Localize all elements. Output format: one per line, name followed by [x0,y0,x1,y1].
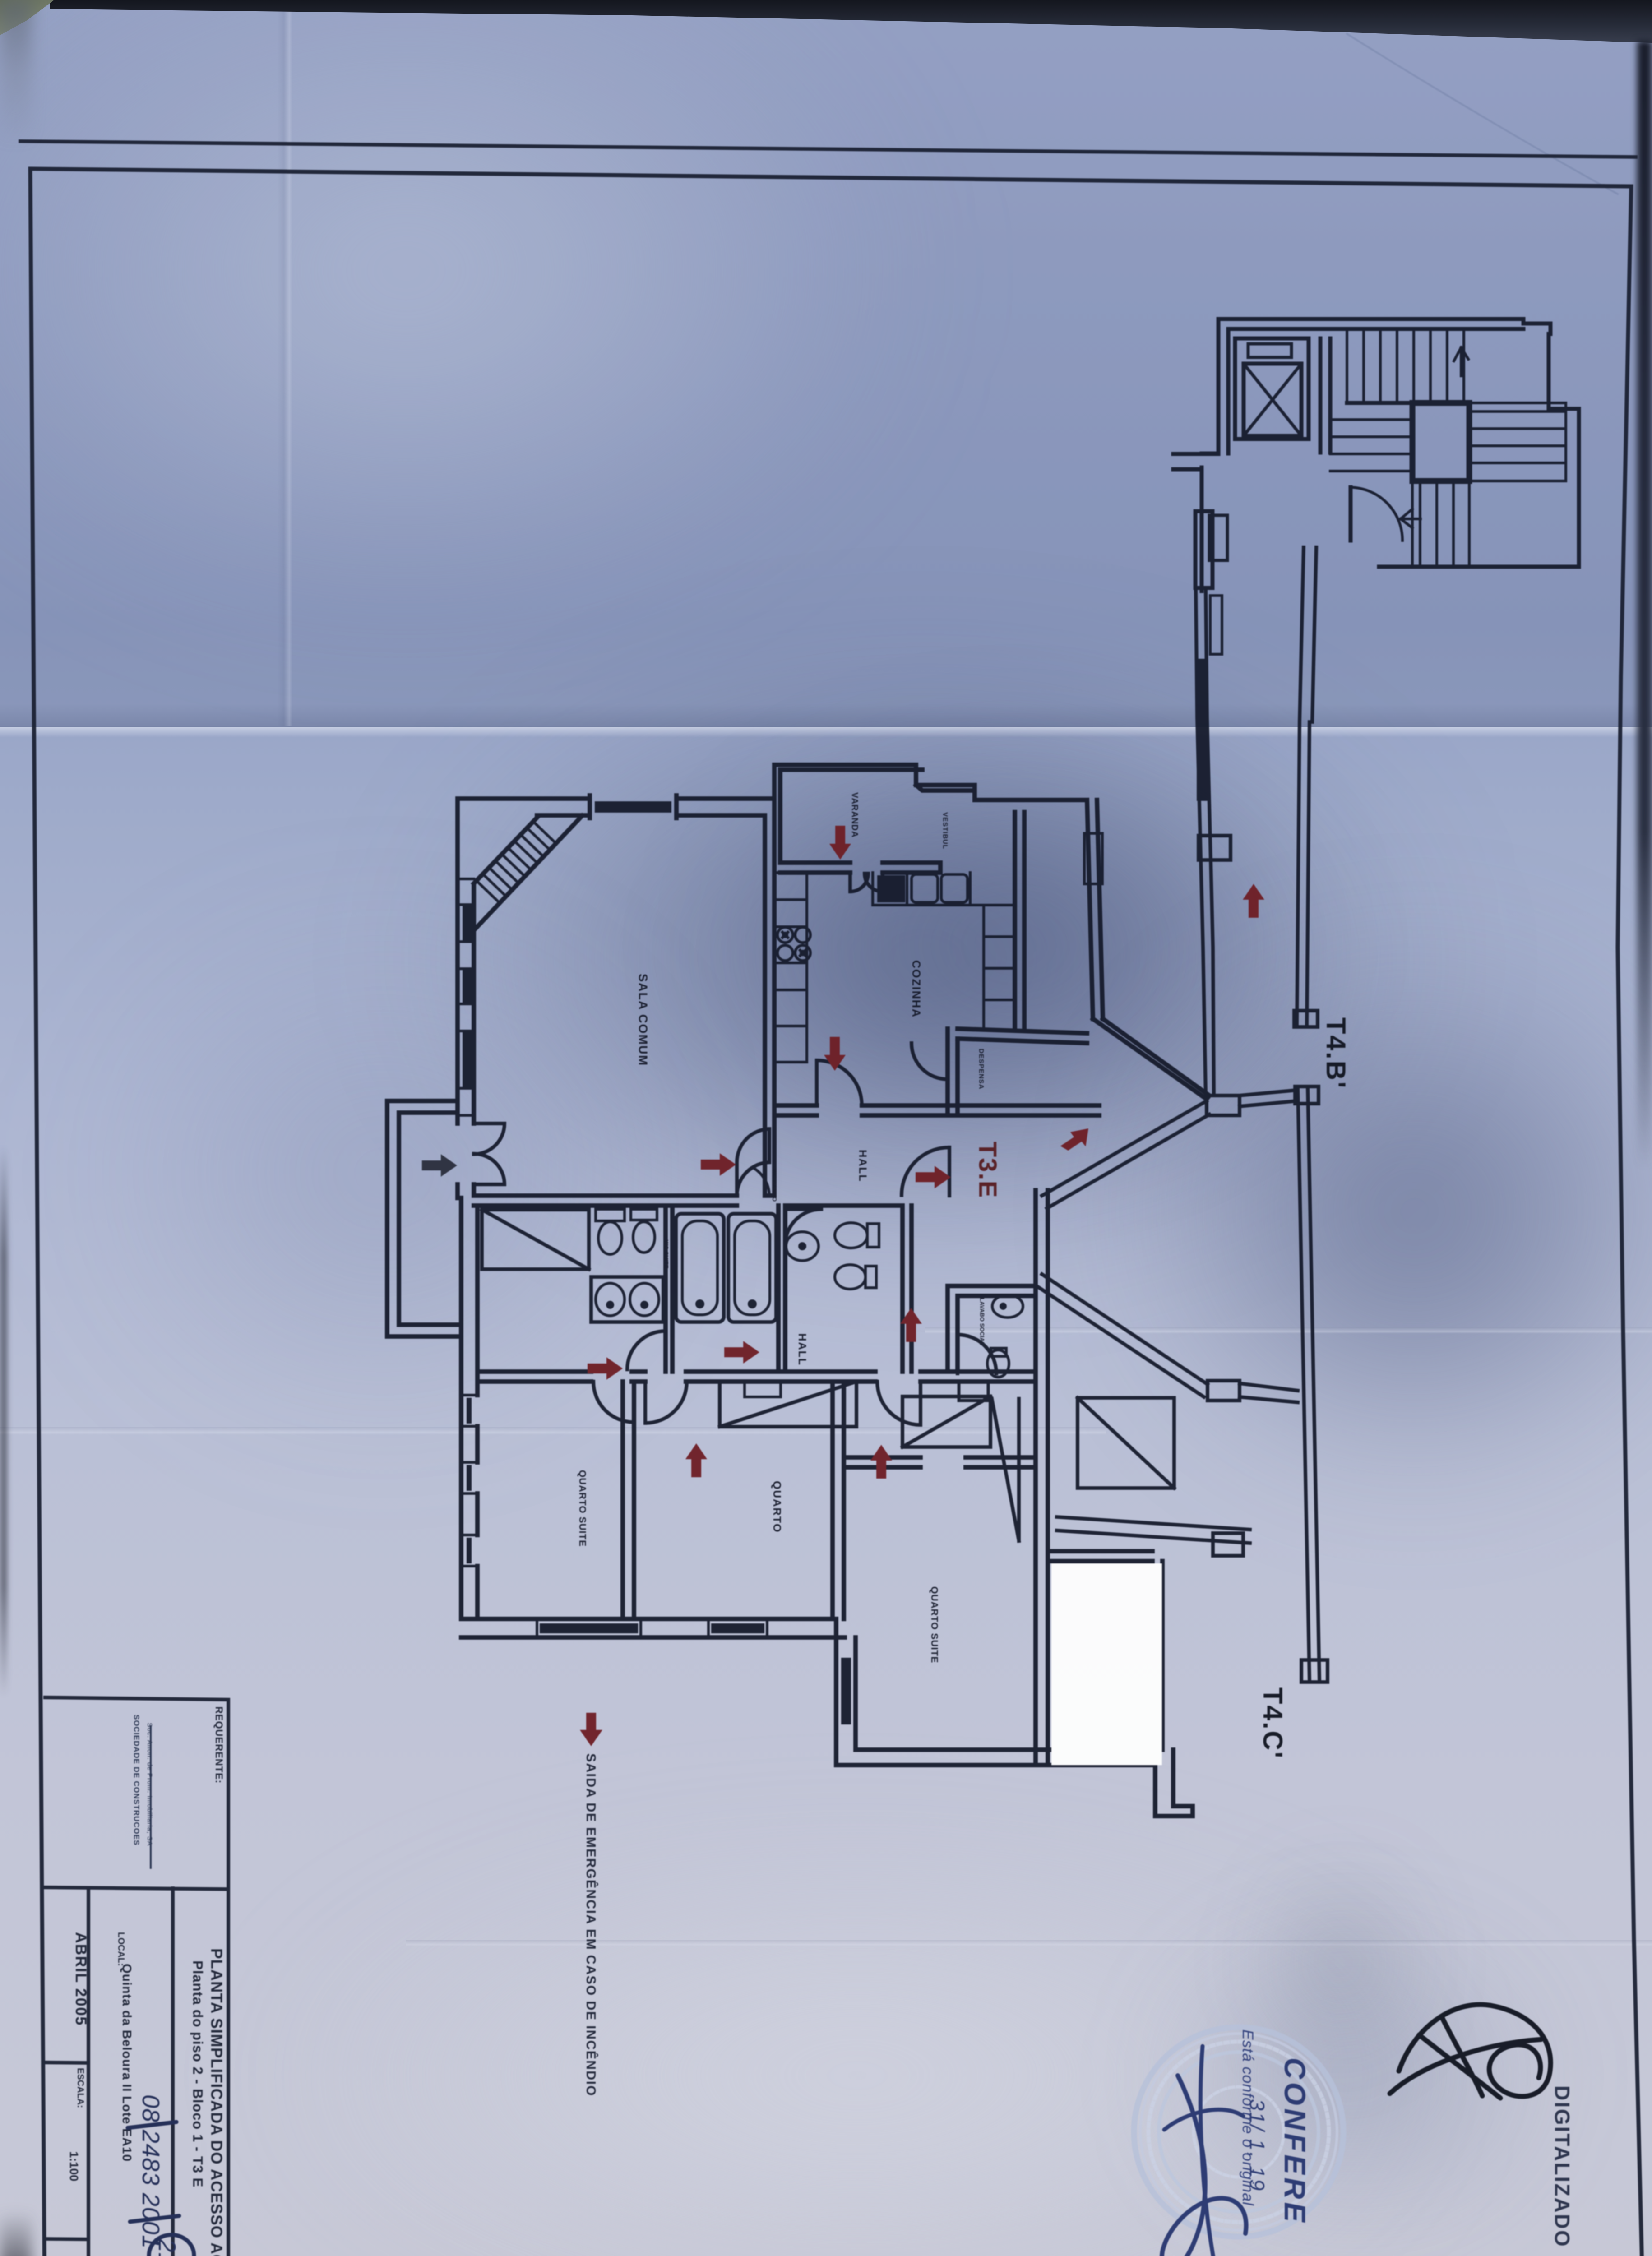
svg-text:08 2483 2001 FTH: 08 2483 2001 FTH [137,2094,164,2256]
svg-text:VARANDA: VARANDA [850,792,859,838]
svg-text:QUARTO: QUARTO [771,1481,783,1533]
svg-text:T3.E: T3.E [974,1142,1002,1198]
svg-text:REQUERENTE:: REQUERENTE: [213,1706,225,1784]
svg-text:ABRIL 2005: ABRIL 2005 [72,1932,89,2026]
svg-text:31/ 1, 19: 31/ 1, 19 [1245,2099,1269,2192]
svg-text:Planta do piso 2 - Bloco 1 - T: Planta do piso 2 - Bloco 1 - T3 E [190,1960,206,2187]
svg-text:SALA COMUM: SALA COMUM [636,974,650,1066]
svg-text:PLANTA SIMPLIFICADA DO ACESSO: PLANTA SIMPLIFICADA DO ACESSO AO FOGO [208,1948,225,2256]
svg-text:WC SUITE: WC SUITE [663,1240,670,1269]
svg-text:LOCAL:: LOCAL: [116,1932,126,1966]
svg-text:SOCIEDADE DE CONSTRUCOES: SOCIEDADE DE CONSTRUCOES [132,1715,141,1845]
svg-text:LAVABO SOCIAL: LAVABO SOCIAL [979,1298,986,1345]
svg-text:VESTIBUL: VESTIBUL [941,812,949,849]
svg-text:WC BANHO: WC BANHO [771,1169,778,1202]
svg-text:ESCALA:: ESCALA: [75,2068,85,2108]
svg-text:Quinta da Beloura II Lote EA: Quinta da Beloura II Lote EA10 [120,1964,134,2162]
svg-text:SAIDA DE EMERGÊNCIA EM CASO DE: SAIDA DE EMERGÊNCIA EM CASO DE INCÊNDIO [583,1753,599,2097]
svg-text:COZINHA: COZINHA [910,960,922,1018]
svg-text:QUARTO SUITE: QUARTO SUITE [929,1586,939,1663]
svg-text:QUARTO SUITE: QUARTO SUITE [577,1470,588,1547]
svg-text:HALL: HALL [856,1150,869,1182]
svg-text:T4.C': T4.C' [1258,1687,1288,1759]
svg-text:CONFERE: CONFERE [1278,2057,1312,2225]
svg-text:Soc. Anon. de Prom. Imobiliari: Soc. Anon. de Prom. Imobiliaria, SA [146,1723,153,1846]
svg-text:HALL: HALL [796,1333,808,1366]
svg-text:DIGITALIZADO: DIGITALIZADO [1550,2085,1574,2248]
svg-text:DESPENSA: DESPENSA [977,1049,985,1090]
svg-text:T4.B': T4.B' [1321,1017,1351,1089]
svg-text:1:100: 1:100 [67,2151,81,2182]
